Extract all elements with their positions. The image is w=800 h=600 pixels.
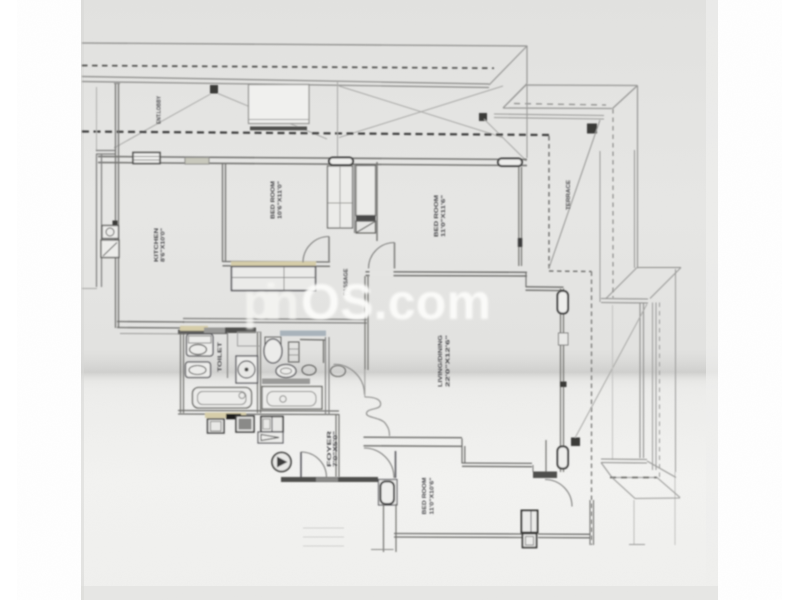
svg-text:OS.com: OS.com: [301, 274, 491, 330]
svg-text:8'6"X10'0": 8'6"X10'0": [161, 227, 167, 262]
svg-text:BED ROOM: BED ROOM: [434, 195, 440, 237]
svg-text:ENT.LOBBY: ENT.LOBBY: [157, 95, 163, 124]
svg-text:BED ROOM: BED ROOM: [422, 478, 428, 515]
svg-text:10'6"X11'0": 10'6"X11'0": [278, 180, 284, 219]
svg-text:LIVING/DINING: LIVING/DINING: [438, 335, 444, 387]
svg-text:pin: pin: [243, 274, 299, 330]
svg-text:TOILET: TOILET: [218, 341, 224, 372]
svg-text:KITCHEN: KITCHEN: [154, 228, 160, 262]
svg-text:7'0"X5'0": 7'0"X5'0": [333, 430, 339, 467]
svg-text:11'0"X11'6": 11'0"X11'6": [441, 194, 447, 237]
svg-text:22'0"X12'6": 22'0"X12'6": [446, 334, 452, 387]
svg-text:11'0"X10'6": 11'0"X10'6": [430, 477, 436, 515]
svg-text:TERRACE: TERRACE: [566, 179, 572, 210]
svg-text:BED ROOM: BED ROOM: [271, 181, 277, 219]
